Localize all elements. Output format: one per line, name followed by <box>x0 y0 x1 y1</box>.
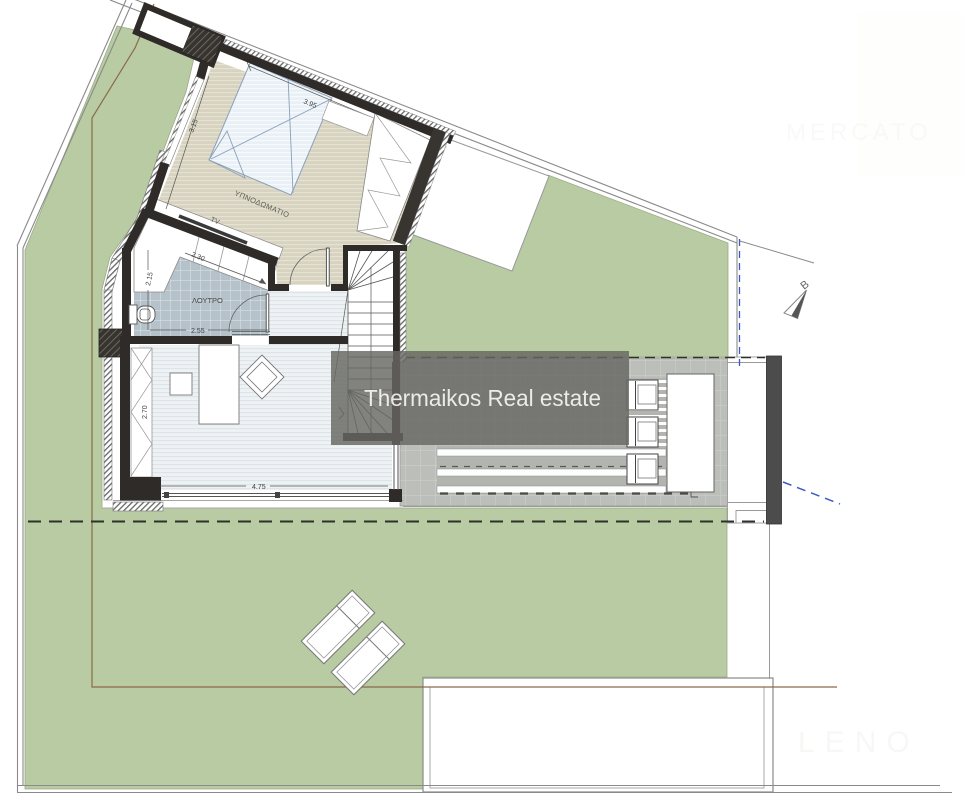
svg-text:2.55: 2.55 <box>191 328 205 335</box>
svg-text:LENO: LENO <box>798 726 920 759</box>
svg-text:Thermaikos Real estate: Thermaikos Real estate <box>364 385 601 411</box>
svg-text:2.70: 2.70 <box>142 405 149 419</box>
svg-text:MERCATO: MERCATO <box>786 119 932 146</box>
svg-text:ΛΟΥΤΡΟ: ΛΟΥΤΡΟ <box>192 296 223 305</box>
svg-text:4.75: 4.75 <box>252 484 266 491</box>
